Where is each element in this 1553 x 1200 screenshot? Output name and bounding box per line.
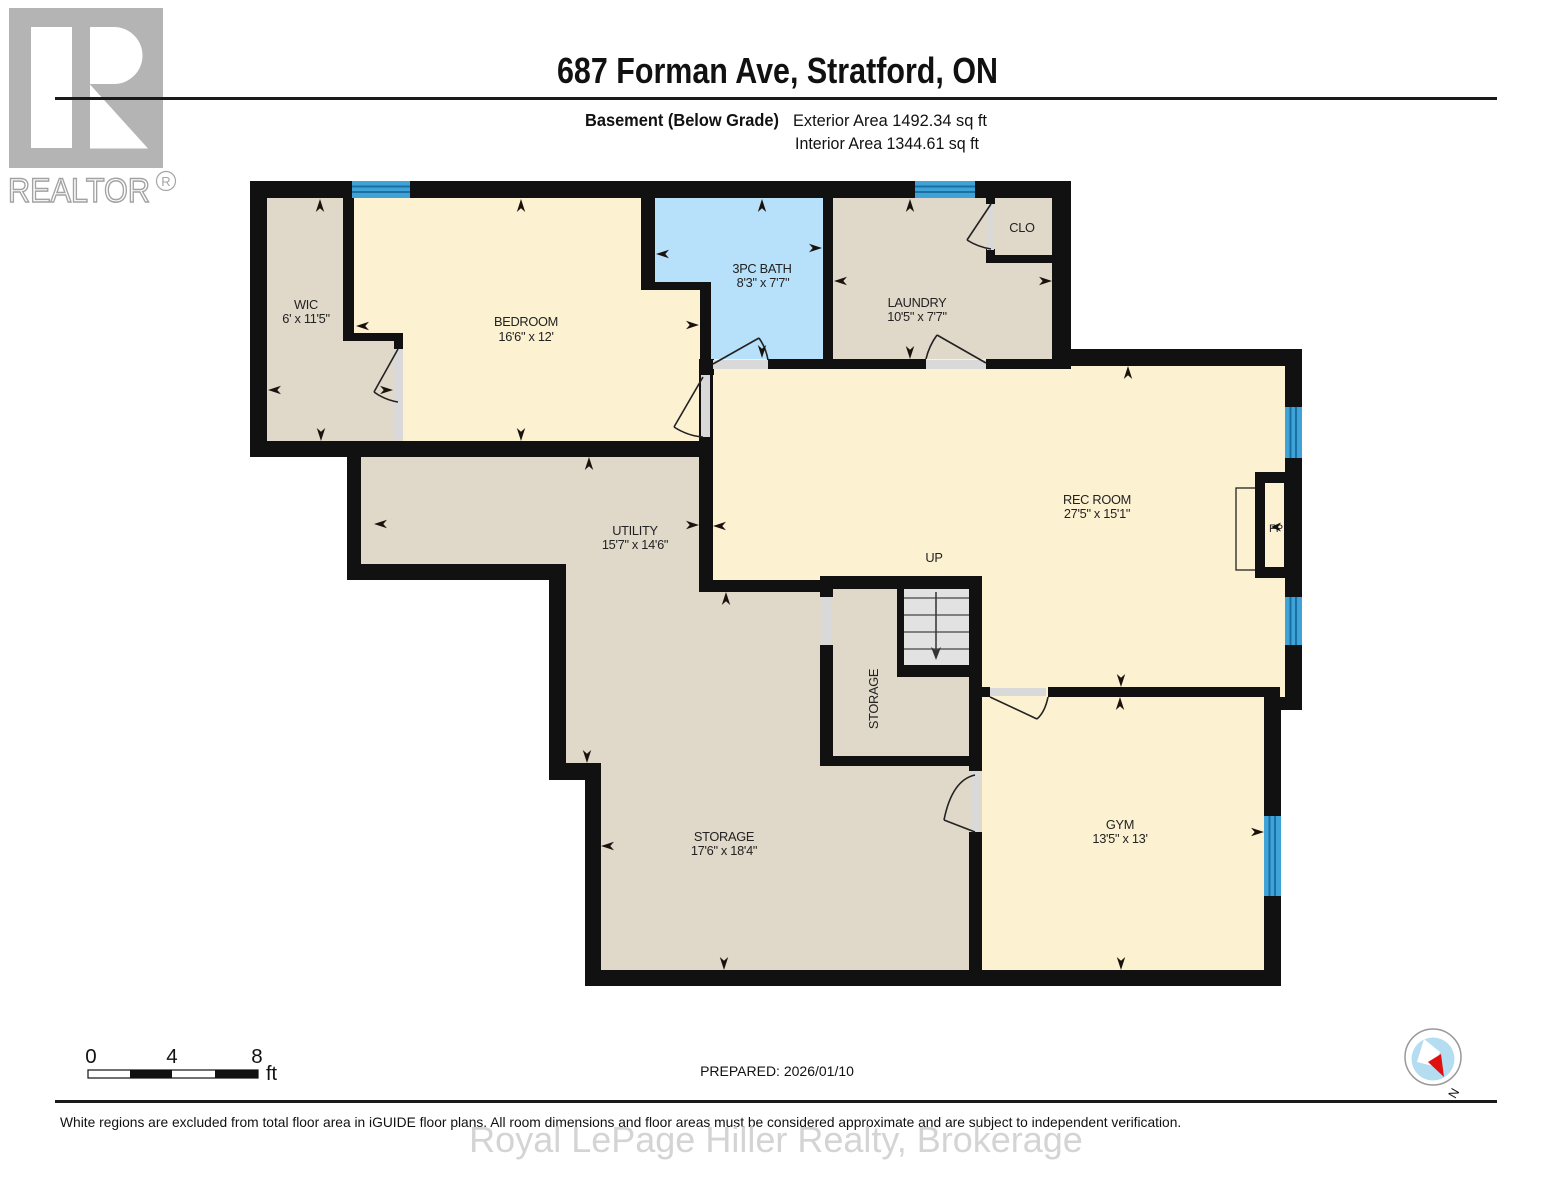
svg-text:WIC: WIC [294, 297, 318, 312]
svg-text:27'5" x 15'1": 27'5" x 15'1" [1064, 506, 1130, 521]
svg-text:15'7" x 14'6": 15'7" x 14'6" [602, 537, 668, 552]
svg-text:ft: ft [266, 1063, 278, 1085]
svg-text:4: 4 [166, 1045, 177, 1068]
svg-text:REALTOR: REALTOR [8, 172, 150, 210]
svg-text:16'6" x 12': 16'6" x 12' [498, 329, 553, 344]
svg-text:CLO: CLO [1009, 220, 1035, 235]
svg-text:0: 0 [85, 1045, 96, 1068]
svg-text:N: N [1445, 1086, 1462, 1101]
svg-text:STORAGE: STORAGE [866, 669, 881, 729]
svg-text:8: 8 [251, 1045, 262, 1068]
svg-text:687 Forman Ave, Stratford, ON: 687 Forman Ave, Stratford, ON [557, 50, 998, 91]
svg-text:R: R [161, 174, 170, 189]
svg-text:LAUNDRY: LAUNDRY [888, 295, 948, 310]
svg-text:REC ROOM: REC ROOM [1063, 492, 1131, 507]
svg-text:Basement (Below Grade): Basement (Below Grade) [585, 110, 779, 130]
svg-text:STORAGE: STORAGE [694, 829, 754, 844]
svg-text:PREPARED: 2026/01/10: PREPARED: 2026/01/10 [700, 1063, 854, 1079]
svg-text:UP: UP [925, 550, 942, 565]
svg-text:17'6" x 18'4": 17'6" x 18'4" [691, 843, 757, 858]
svg-text:10'5" x 7'7": 10'5" x 7'7" [887, 309, 946, 324]
svg-text:Royal LePage Hiller Realty, Br: Royal LePage Hiller Realty, Brokerage [469, 1119, 1083, 1160]
svg-text:Exterior Area 1492.34 sq ft: Exterior Area 1492.34 sq ft [793, 111, 987, 130]
svg-text:GYM: GYM [1106, 817, 1134, 832]
svg-text:3PC BATH: 3PC BATH [732, 261, 791, 276]
svg-text:BEDROOM: BEDROOM [494, 314, 558, 329]
svg-text:6' x 11'5": 6' x 11'5" [282, 311, 329, 326]
svg-text:Interior Area 1344.61 sq ft: Interior Area 1344.61 sq ft [795, 134, 979, 153]
svg-text:UTILITY: UTILITY [612, 523, 658, 538]
svg-text:13'5" x 13': 13'5" x 13' [1092, 831, 1147, 846]
svg-text:8'3" x 7'7": 8'3" x 7'7" [737, 275, 790, 290]
